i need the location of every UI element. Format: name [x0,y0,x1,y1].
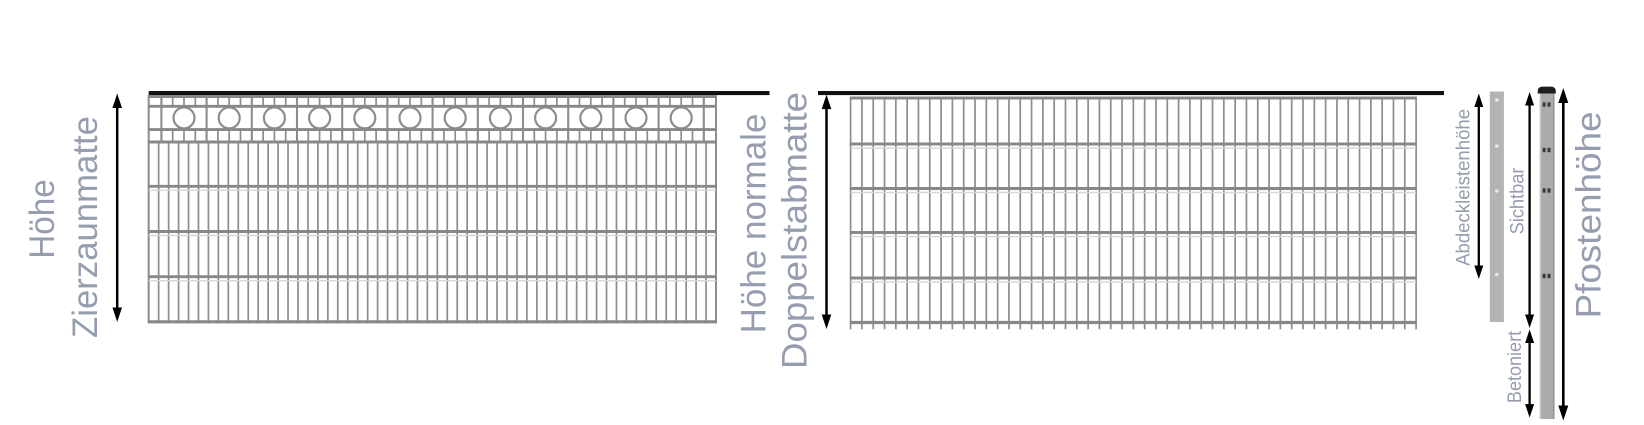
svg-text:Höhe: Höhe [23,179,62,258]
svg-text:Zierzaunmatte: Zierzaunmatte [66,116,105,338]
svg-text:Betoniert: Betoniert [1504,330,1526,403]
svg-text:Doppelstabmatte: Doppelstabmatte [775,92,814,369]
svg-text:Abdeckleistenhöhe: Abdeckleistenhöhe [1452,109,1473,266]
svg-text:Höhe normale: Höhe normale [735,114,774,334]
svg-text:Sichtbar: Sichtbar [1506,168,1527,235]
svg-text:Pfostenhöhe: Pfostenhöhe [1568,112,1608,319]
